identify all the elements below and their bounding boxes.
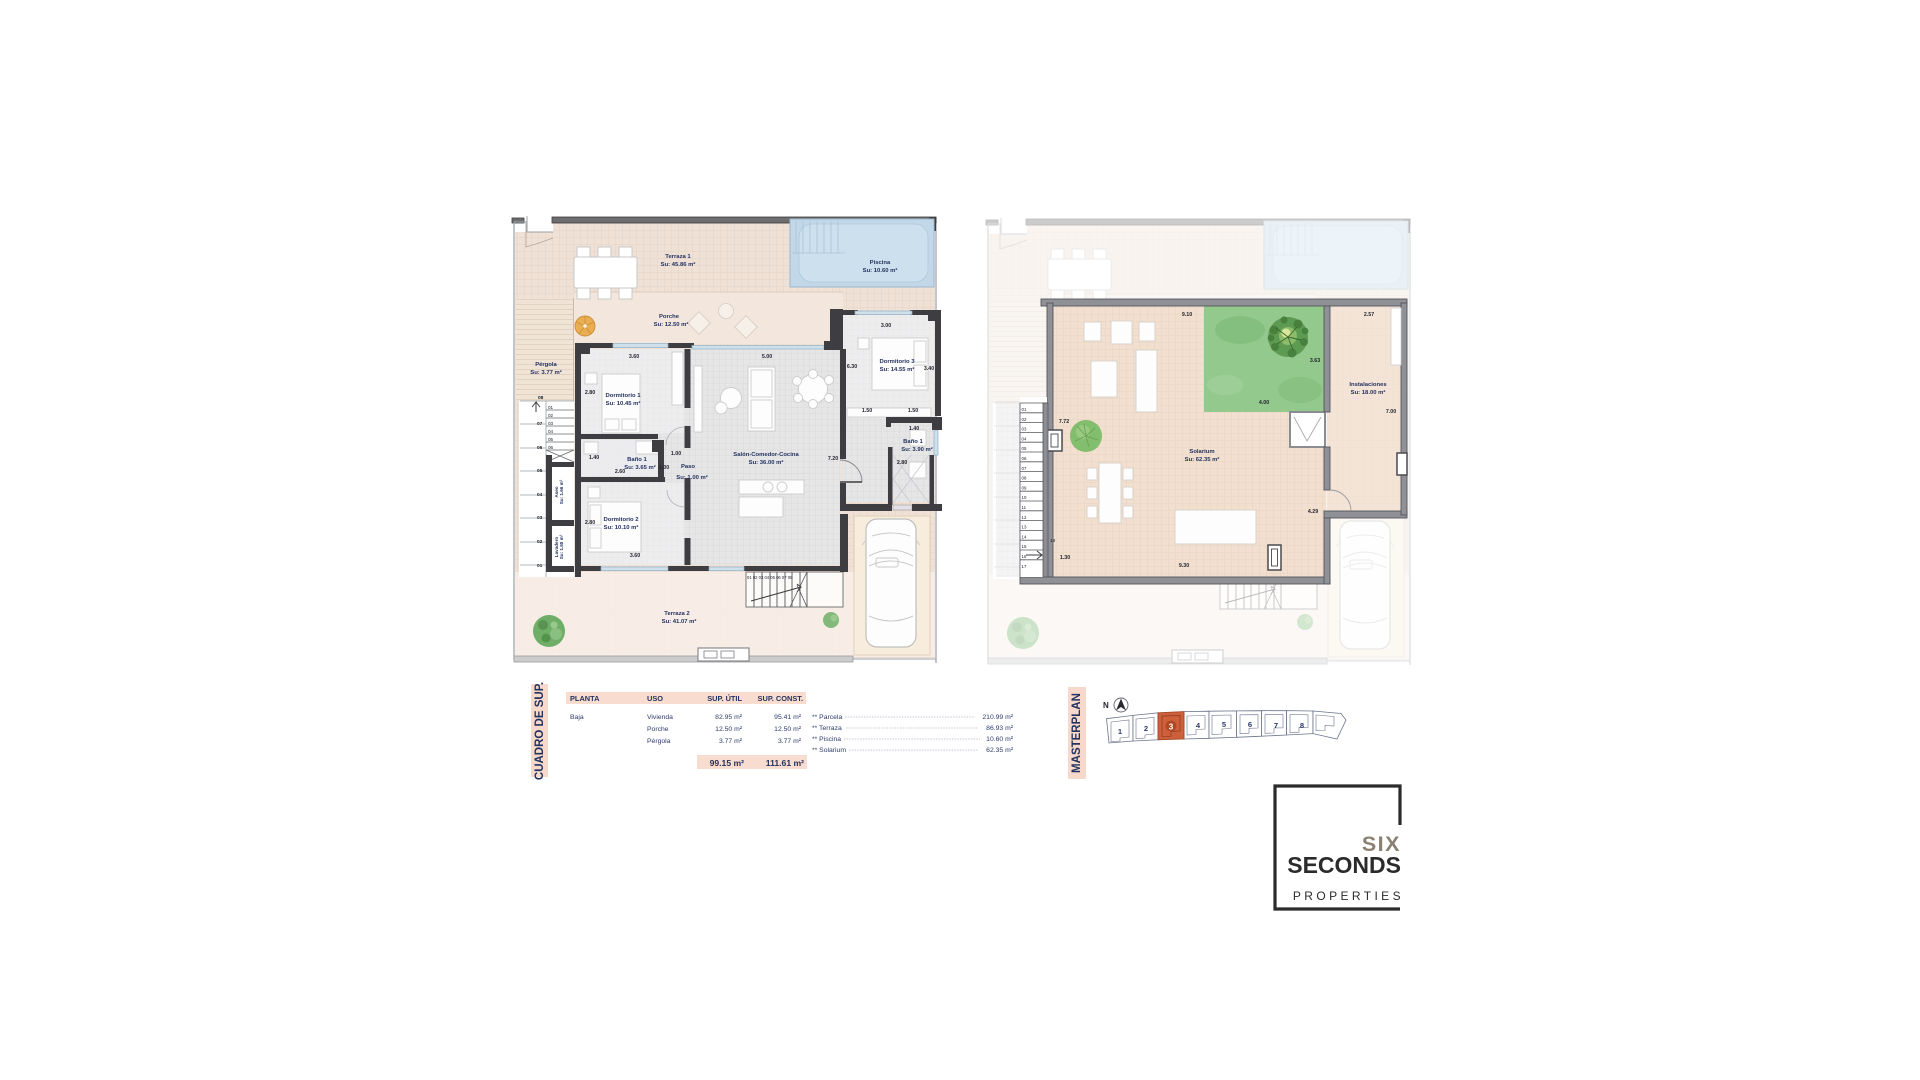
svg-text:Su: 14.55 m²: Su: 14.55 m² [880, 366, 915, 373]
svg-text:1.30: 1.30 [1060, 555, 1070, 561]
svg-text:05: 05 [548, 437, 554, 442]
svg-text:01: 01 [537, 563, 543, 569]
svg-text:03: 03 [537, 515, 543, 521]
svg-text:11: 11 [1022, 505, 1027, 510]
svg-text:10: 10 [1022, 495, 1027, 500]
svg-text:Su: 1.66 m²: Su: 1.66 m² [559, 479, 564, 504]
svg-text:Su: 12.50 m²: Su: 12.50 m² [654, 321, 689, 328]
svg-text:9.30: 9.30 [1179, 563, 1189, 569]
svg-text:3.60: 3.60 [630, 553, 640, 559]
svg-text:SUP. CONST.: SUP. CONST. [758, 694, 803, 703]
svg-text:MASTERPLAN: MASTERPLAN [1071, 693, 1083, 773]
svg-text:07: 07 [537, 421, 543, 427]
svg-text:3.63: 3.63 [1310, 358, 1320, 364]
svg-text:12.50 m²: 12.50 m² [774, 726, 802, 733]
svg-text:Dormitorio 3: Dormitorio 3 [879, 359, 915, 365]
svg-text:12: 12 [1022, 515, 1027, 520]
svg-text:Paso: Paso [681, 464, 695, 470]
svg-text:1.40: 1.40 [909, 426, 919, 432]
svg-text:Vivienda: Vivienda [647, 714, 673, 721]
svg-text:2.57: 2.57 [1364, 312, 1374, 318]
svg-text:Pérgola: Pérgola [647, 738, 671, 745]
svg-text:04: 04 [548, 429, 554, 434]
svg-text:Dormitorio 2: Dormitorio 2 [603, 517, 639, 523]
svg-text:Su: 18.00 m²: Su: 18.00 m² [1351, 389, 1386, 396]
svg-text:Su: 45.86 m²: Su: 45.86 m² [661, 261, 696, 268]
svg-text:86.93 m²: 86.93 m² [986, 725, 1014, 732]
svg-text:08: 08 [538, 395, 544, 401]
svg-text:06: 06 [548, 445, 554, 450]
svg-text:7.20: 7.20 [828, 456, 838, 462]
svg-text:Su: 10.45 m²: Su: 10.45 m² [606, 400, 641, 407]
svg-text:PLANTA: PLANTA [570, 694, 600, 703]
svg-text:210.99 m²: 210.99 m² [982, 714, 1013, 721]
svg-text:02: 02 [537, 539, 543, 545]
svg-text:2.80: 2.80 [585, 390, 595, 396]
svg-text:02: 02 [548, 413, 554, 418]
svg-text:SECONDS: SECONDS [1287, 852, 1401, 878]
svg-text:Su: 41.07 m²: Su: 41.07 m² [662, 618, 697, 625]
svg-text:3.60: 3.60 [629, 354, 639, 360]
svg-text:3: 3 [1169, 722, 1174, 732]
svg-text:01: 01 [548, 405, 554, 410]
svg-text:Instalaciones: Instalaciones [1349, 382, 1387, 388]
svg-text:PROPERTIES: PROPERTIES [1293, 889, 1404, 903]
svg-text:Baño 1: Baño 1 [627, 457, 647, 463]
svg-text:Dormitorio 1: Dormitorio 1 [605, 393, 641, 399]
svg-text:7: 7 [1274, 721, 1278, 730]
svg-text:4.29: 4.29 [1308, 509, 1318, 515]
svg-text:** Piscina: ** Piscina [812, 736, 841, 743]
svg-text:03: 03 [548, 421, 554, 426]
svg-text:Piscina: Piscina [870, 260, 891, 266]
svg-text:99.15 m²: 99.15 m² [710, 758, 745, 768]
svg-text:18: 18 [1050, 538, 1056, 544]
svg-text:3.40: 3.40 [924, 366, 934, 372]
svg-text:2: 2 [1144, 724, 1148, 733]
svg-text:10.60 m²: 10.60 m² [986, 736, 1014, 743]
svg-text:5.00: 5.00 [762, 354, 772, 360]
svg-text:SUP. ÚTIL: SUP. ÚTIL [707, 694, 742, 703]
svg-text:Su: 62.35 m²: Su: 62.35 m² [1185, 456, 1220, 463]
svg-text:Baño 1: Baño 1 [903, 439, 923, 445]
svg-text:05: 05 [1022, 446, 1027, 451]
svg-text:Su: 3.77 m²: Su: 3.77 m² [530, 369, 561, 376]
svg-text:Baja: Baja [570, 714, 584, 721]
svg-text:Terraza 2: Terraza 2 [664, 611, 690, 617]
svg-text:1.50: 1.50 [908, 408, 918, 414]
svg-text:Lavadero: Lavadero [554, 537, 559, 558]
svg-text:13: 13 [1022, 525, 1027, 530]
svg-text:Aseo: Aseo [554, 486, 559, 497]
svg-text:03: 03 [1022, 427, 1027, 432]
svg-text:04: 04 [1022, 436, 1027, 441]
svg-text:1.00: 1.00 [671, 451, 681, 457]
svg-text:** Solarium: ** Solarium [812, 747, 846, 754]
svg-text:08: 08 [1022, 476, 1027, 481]
svg-text:N: N [1103, 701, 1109, 710]
svg-text:Salón-Comedor-Cocina: Salón-Comedor-Cocina [733, 452, 799, 458]
svg-text:95.41 m²: 95.41 m² [774, 714, 802, 721]
svg-text:Porche: Porche [647, 726, 669, 733]
svg-text:82.95 m²: 82.95 m² [715, 714, 743, 721]
svg-text:CUADRO DE SUP.: CUADRO DE SUP. [534, 682, 546, 780]
svg-text:USO: USO [647, 694, 663, 703]
svg-text:3.00: 3.00 [881, 323, 891, 329]
svg-text:Solarium: Solarium [1189, 449, 1214, 455]
svg-text:07: 07 [1022, 466, 1027, 471]
svg-text:Su: 3.90 m²: Su: 3.90 m² [901, 446, 932, 453]
svg-text:04: 04 [537, 492, 543, 498]
svg-text:6: 6 [1248, 720, 1252, 729]
svg-text:7.72: 7.72 [1059, 419, 1069, 425]
svg-text:3.77 m²: 3.77 m² [719, 738, 743, 745]
svg-text:3.77 m²: 3.77 m² [778, 738, 802, 745]
svg-text:** Terraza: ** Terraza [812, 725, 842, 732]
svg-text:05: 05 [537, 468, 543, 474]
svg-text:1.50: 1.50 [862, 408, 872, 414]
svg-text:Pérgola: Pérgola [535, 362, 557, 368]
svg-text:Su: 1.00 m²: Su: 1.00 m² [676, 474, 707, 481]
svg-text:14: 14 [1022, 534, 1027, 539]
svg-text:4.00: 4.00 [1259, 400, 1269, 406]
svg-text:1.00: 1.00 [659, 465, 669, 471]
svg-text:12.50 m²: 12.50 m² [715, 726, 743, 733]
svg-text:06: 06 [1022, 456, 1027, 461]
svg-text:Su: 10.10 m²: Su: 10.10 m² [604, 524, 639, 531]
svg-text:2.60: 2.60 [615, 469, 625, 475]
svg-text:01: 01 [1022, 407, 1027, 412]
svg-text:** Parcela: ** Parcela [812, 714, 842, 721]
svg-text:2.80: 2.80 [897, 460, 907, 466]
svg-text:15: 15 [1022, 544, 1027, 549]
svg-text:2.80: 2.80 [585, 520, 595, 526]
svg-text:01 02 03 04 05 06 07 08: 01 02 03 04 05 06 07 08 [747, 575, 793, 580]
svg-text:6.30: 6.30 [847, 364, 857, 370]
svg-text:111.61 m²: 111.61 m² [766, 758, 804, 768]
svg-text:7.00: 7.00 [1386, 409, 1396, 415]
svg-text:9.10: 9.10 [1182, 312, 1192, 318]
svg-text:17: 17 [1022, 564, 1027, 569]
svg-text:06: 06 [537, 445, 543, 451]
svg-text:Porche: Porche [659, 314, 680, 320]
svg-text:1.40: 1.40 [589, 455, 599, 461]
svg-text:Su: 1.50 m²: Su: 1.50 m² [559, 534, 564, 559]
svg-text:Terraza 1: Terraza 1 [665, 254, 691, 260]
svg-text:Su: 36.00 m²: Su: 36.00 m² [749, 459, 784, 466]
svg-text:09: 09 [1022, 485, 1027, 490]
svg-text:Su: 10.60 m²: Su: 10.60 m² [863, 267, 898, 274]
svg-text:8: 8 [1300, 721, 1304, 730]
svg-text:02: 02 [1022, 417, 1027, 422]
svg-text:62.35 m²: 62.35 m² [986, 747, 1014, 754]
svg-text:Su: 3.65 m²: Su: 3.65 m² [624, 464, 655, 471]
